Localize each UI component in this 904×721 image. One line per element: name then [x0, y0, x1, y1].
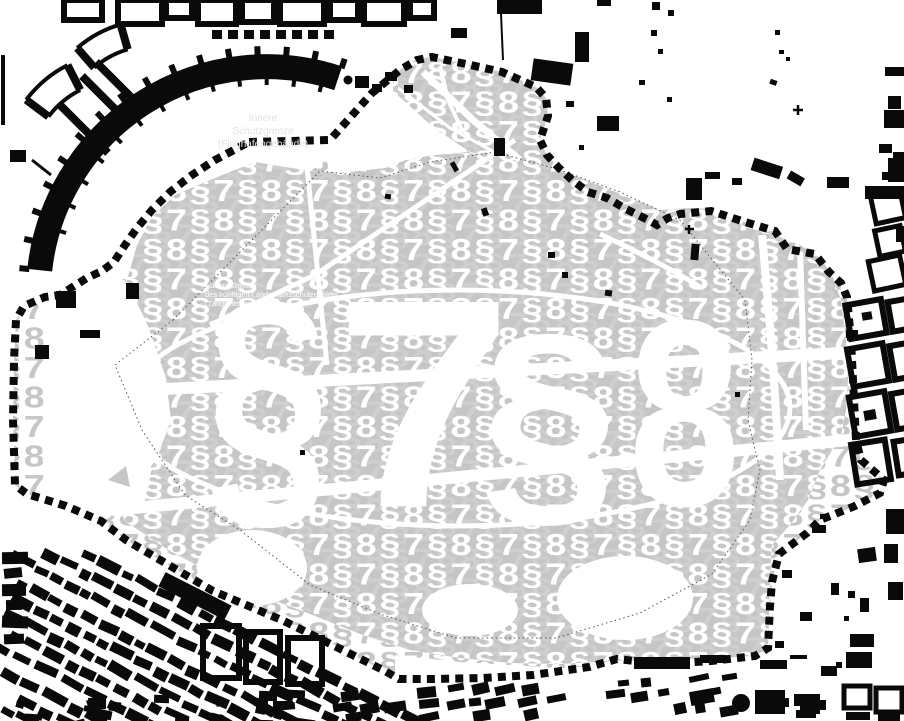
svg-text:des künftigen Landschaftsschut: des künftigen Landschaftsschutzgebiets — [205, 290, 338, 299]
svg-text:Innere: Innere — [249, 113, 278, 124]
svg-text:(Flughafengebäude): (Flughafengebäude) — [218, 139, 308, 150]
svg-text:(Tätigkeitsbereich): (Tätigkeitsbereich) — [205, 299, 267, 308]
svg-text:§: § — [480, 285, 618, 550]
svg-text:Schutzgrenze: Schutzgrenze — [232, 126, 294, 137]
svg-text:Äußere Grenze: Äußere Grenze — [205, 281, 256, 290]
